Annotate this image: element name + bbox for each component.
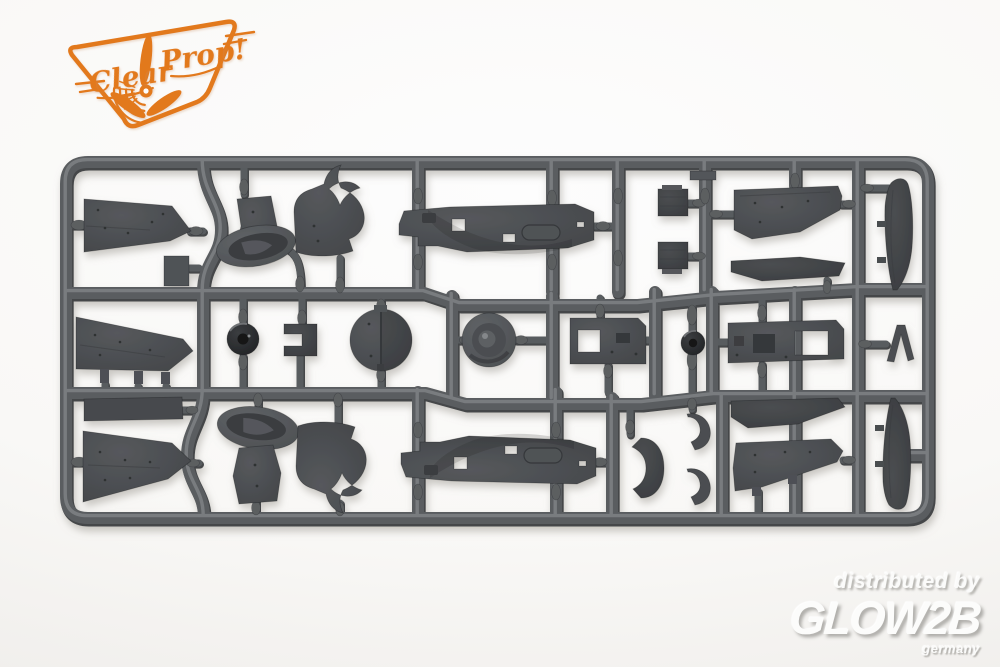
part-wing-panel-lower-right bbox=[733, 439, 843, 496]
part-wing-panel-lower-left bbox=[83, 431, 191, 502]
part-engine-mount-block bbox=[570, 318, 646, 364]
part-wing-panel-upper-right bbox=[734, 186, 842, 239]
part-landing-gear-bracket bbox=[284, 324, 317, 356]
watermark-distributed-by: distributed by bbox=[790, 571, 980, 592]
part-cockpit-sidewall-lower bbox=[233, 445, 281, 504]
part-rudder-half-lower bbox=[875, 398, 911, 509]
part-access-panel-upper bbox=[164, 256, 189, 286]
part-windscreen-frame bbox=[887, 325, 914, 362]
part-cowl-flap-section-lower bbox=[296, 422, 366, 513]
part-cowl-flap-section-upper bbox=[294, 165, 364, 256]
part-tail-wheel bbox=[227, 323, 259, 355]
part-fuselage-bulkhead-disc bbox=[350, 305, 412, 371]
part-small-tab bbox=[690, 171, 716, 180]
part-fuselage-half-upper bbox=[399, 204, 594, 254]
part-radiator-block-b bbox=[658, 242, 688, 274]
part-wing-panel-middle-left bbox=[76, 317, 193, 384]
part-radiator-block-a bbox=[658, 185, 688, 216]
part-aileron-strip-lower-right bbox=[731, 398, 845, 428]
part-wheel-hub bbox=[681, 331, 705, 355]
distributor-watermark: distributed by GLOW2B germany bbox=[790, 571, 980, 655]
logo-text-prop: Prop! bbox=[157, 32, 248, 78]
part-propeller-spinner bbox=[462, 313, 516, 367]
watermark-brand: GLOW2B bbox=[789, 595, 982, 641]
product-photo: Clear Prop! distributed by GLOW2B german… bbox=[0, 0, 1000, 667]
part-fuselage-half-lower bbox=[401, 434, 596, 484]
part-wing-panel-upper-left bbox=[84, 199, 191, 252]
clear-prop-logo: Clear Prop! bbox=[58, 10, 258, 140]
part-cowl-crescent-small bbox=[632, 414, 710, 505]
part-rudder-half-upper bbox=[877, 179, 913, 290]
part-access-panel bbox=[84, 397, 183, 421]
part-wing-spar-box bbox=[728, 320, 844, 363]
